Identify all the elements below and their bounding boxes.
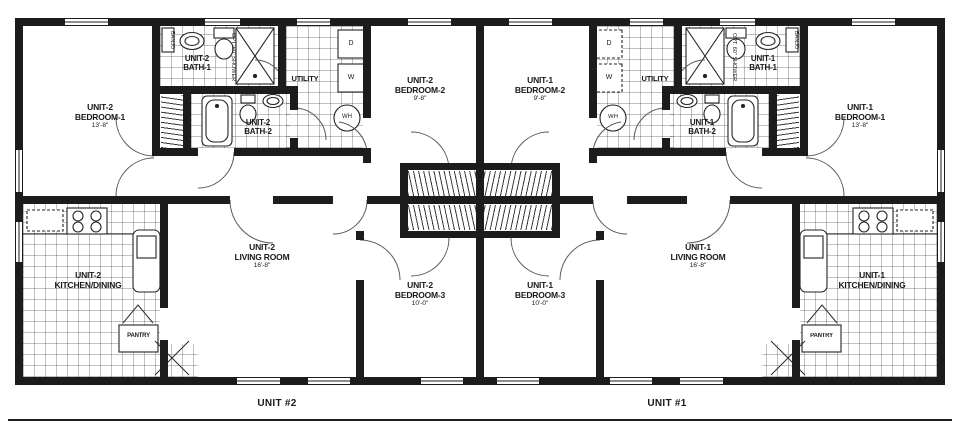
window	[15, 150, 23, 192]
toilet-tank-icon	[241, 95, 255, 103]
closet-wall	[400, 163, 408, 238]
window	[408, 18, 451, 26]
room-name: LIVING ROOM	[207, 252, 317, 262]
tub-drain	[216, 105, 219, 108]
dryer-label: D	[596, 40, 622, 47]
interior-wall	[367, 196, 476, 204]
interior-wall	[596, 231, 604, 240]
room-name: BEDROOM-2	[486, 85, 594, 95]
interior-wall	[160, 86, 298, 94]
shower-drain	[253, 74, 256, 77]
interior-wall	[762, 148, 808, 156]
window	[237, 377, 280, 385]
room-name: BATH-1	[731, 63, 795, 72]
window	[937, 150, 945, 192]
pantry-label: PANTRY	[119, 333, 158, 340]
sink-bowl-icon	[185, 37, 199, 46]
unit2-footer-label: UNIT #2	[232, 398, 322, 409]
washer-label: W	[338, 74, 364, 81]
interior-wall	[290, 94, 298, 110]
room-dim: 13'-8"	[45, 122, 155, 130]
interior-wall	[23, 196, 160, 204]
door-arc	[294, 108, 326, 140]
exterior-wall	[937, 18, 945, 385]
pantry-door-leaves	[807, 305, 837, 323]
room-dim: 10'-0"	[365, 300, 475, 308]
pantry-door-leaves	[123, 305, 153, 323]
window	[680, 377, 723, 385]
room-unit: UNIT-1	[817, 270, 927, 280]
room-name: BEDROOM-1	[45, 112, 155, 122]
closet-wall	[400, 231, 476, 238]
stove-icon	[67, 208, 107, 234]
window	[308, 377, 350, 385]
interior-wall	[662, 86, 800, 94]
interior-wall	[183, 94, 191, 148]
room-unit: UNIT-1	[805, 102, 915, 112]
room-unit: UNIT-1	[486, 75, 594, 85]
unit1-footer-label: UNIT #1	[622, 398, 712, 409]
living-room-label: UNIT-1 LIVING ROOM 16'-8"	[643, 242, 753, 270]
duplex-floor-plan: UNIT-2 BEDROOM-1 13'-8" UNIT-2 BATH-1 UN…	[0, 0, 960, 425]
interior-wall	[363, 153, 371, 163]
interior-wall	[596, 280, 604, 377]
utility-label: UTILITY	[621, 75, 689, 84]
room-dim: 16'-8"	[643, 262, 753, 270]
opt-shower-label: OPT. 60" SHOWER	[224, 28, 235, 86]
interior-wall	[363, 18, 371, 118]
door-arc	[560, 240, 600, 280]
interior-wall	[160, 204, 168, 308]
door-arc	[116, 158, 154, 196]
room-unit: UNIT-2	[365, 280, 475, 290]
door-arc	[806, 158, 844, 196]
interior-wall	[627, 196, 687, 204]
interior-wall	[589, 153, 597, 163]
room-name: BEDROOM-1	[805, 112, 915, 122]
stove-icon	[853, 208, 893, 234]
interior-wall	[800, 18, 808, 154]
room-unit: UNIT-1	[731, 54, 795, 63]
door-arc	[360, 240, 400, 280]
door-arc	[634, 108, 666, 140]
utility-label: UTILITY	[271, 75, 339, 84]
closet-door-arc	[411, 238, 449, 276]
bath1-label: UNIT-1 BATH-1	[731, 54, 795, 73]
bedroom3-label: UNIT-2 BEDROOM-3 10'-0"	[365, 280, 475, 308]
room-unit: UNIT-1	[669, 118, 735, 127]
closet-wall	[484, 163, 560, 170]
room-name: BATH-2	[669, 127, 735, 136]
interior-wall	[356, 280, 364, 377]
room-name: BATH-1	[165, 63, 229, 72]
closet-wall	[484, 231, 560, 238]
window	[937, 222, 945, 262]
room-name: BEDROOM-2	[366, 85, 474, 95]
closet-wall	[552, 163, 560, 238]
interior-wall	[769, 94, 777, 148]
room-dim: 16'-8"	[207, 262, 317, 270]
sink-bowl-icon	[267, 98, 279, 105]
unit-1-plan: UNIT-1 BEDROOM-1 13'-8" UNIT-1 BATH-1 UN…	[480, 18, 945, 385]
interior-wall	[662, 138, 670, 148]
window	[610, 377, 652, 385]
bedroom3-label: UNIT-1 BEDROOM-3 10'-0"	[485, 280, 595, 308]
window	[421, 377, 463, 385]
bath1-label: UNIT-2 BATH-1	[165, 54, 229, 73]
interior-wall	[730, 196, 800, 204]
room-unit: UNIT-2	[33, 270, 143, 280]
interior-wall	[290, 138, 298, 148]
room-unit: UNIT-2	[165, 54, 229, 63]
window	[630, 18, 663, 26]
window	[720, 18, 755, 26]
room-unit: UNIT-2	[45, 102, 155, 112]
room-unit: UNIT-2	[366, 75, 474, 85]
kitchen-label: UNIT-2 KITCHEN/DINING	[33, 270, 143, 290]
interior-wall	[792, 204, 800, 308]
interior-wall	[800, 196, 937, 204]
kitchen-label: UNIT-1 KITCHEN/DINING	[817, 270, 927, 290]
bath2-label: UNIT-1 BATH-2	[669, 118, 735, 137]
room-dim: 10'-0"	[485, 300, 595, 308]
room-unit: UNIT-1	[643, 242, 753, 252]
banjo-label: BANJO	[786, 30, 798, 51]
interior-wall	[152, 18, 160, 154]
interior-wall	[160, 340, 168, 377]
closet-wall	[400, 163, 476, 170]
window	[65, 18, 108, 26]
window	[509, 18, 552, 26]
interior-wall	[792, 340, 800, 377]
bedroom2-label: UNIT-2 BEDROOM-2 9'-8"	[366, 75, 474, 103]
bedroom1-label: UNIT-1 BEDROOM-1 13'-8"	[805, 102, 915, 130]
door-arc	[593, 200, 627, 234]
dryer-label: D	[338, 40, 364, 47]
interior-wall	[662, 94, 670, 110]
optional-cabinet	[27, 210, 63, 231]
room-name: LIVING ROOM	[643, 252, 753, 262]
interior-wall	[589, 148, 726, 156]
room-name: KITCHEN/DINING	[33, 280, 143, 290]
bath2-label: UNIT-2 BATH-2	[225, 118, 291, 137]
interior-wall	[589, 18, 597, 118]
room-name: BATH-2	[225, 127, 291, 136]
water-heater-label: WH	[334, 114, 360, 120]
tub-drain	[742, 105, 745, 108]
interior-wall	[160, 196, 230, 204]
bedroom2-label: UNIT-1 BEDROOM-2 9'-8"	[486, 75, 594, 103]
room-name: KITCHEN/DINING	[817, 280, 927, 290]
room-name: BEDROOM-3	[485, 290, 595, 300]
window	[497, 377, 539, 385]
interior-wall	[234, 148, 371, 156]
room-dim: 9'-8"	[366, 95, 474, 103]
sink-bowl-icon	[681, 98, 693, 105]
room-unit: UNIT-2	[207, 242, 317, 252]
door-arc	[198, 152, 234, 188]
door-arc	[230, 200, 273, 243]
closet-door-arc	[511, 238, 549, 276]
door-arc	[333, 200, 367, 234]
banjo-label: BANJO	[162, 30, 174, 51]
window	[15, 222, 23, 262]
pantry-label: PANTRY	[802, 333, 841, 340]
door-arc	[726, 152, 762, 188]
opt-shower-label: OPT. 60" SHOWER	[725, 28, 736, 86]
living-room-label: UNIT-2 LIVING ROOM 16'-8"	[207, 242, 317, 270]
interior-wall	[273, 196, 333, 204]
interior-wall	[356, 231, 364, 240]
room-dim: 13'-8"	[805, 122, 915, 130]
interior-wall	[484, 196, 593, 204]
room-unit: UNIT-2	[225, 118, 291, 127]
room-dim: 9'-8"	[486, 95, 594, 103]
window	[297, 18, 330, 26]
unit-2-plan: UNIT-2 BEDROOM-1 13'-8" UNIT-2 BATH-1 UN…	[15, 18, 480, 385]
window	[852, 18, 895, 26]
shower-drain	[703, 74, 706, 77]
toilet-tank-icon	[705, 95, 719, 103]
water-heater-label: WH	[600, 114, 626, 120]
bedroom1-label: UNIT-2 BEDROOM-1 13'-8"	[45, 102, 155, 130]
optional-cabinet	[897, 210, 933, 231]
window	[205, 18, 240, 26]
washer-label: W	[596, 74, 622, 81]
room-unit: UNIT-1	[485, 280, 595, 290]
sink-bowl-icon	[761, 37, 775, 46]
door-arc	[687, 200, 730, 243]
bottom-rule	[8, 419, 952, 421]
interior-wall	[152, 148, 198, 156]
exterior-wall	[15, 18, 23, 385]
room-name: BEDROOM-3	[365, 290, 475, 300]
